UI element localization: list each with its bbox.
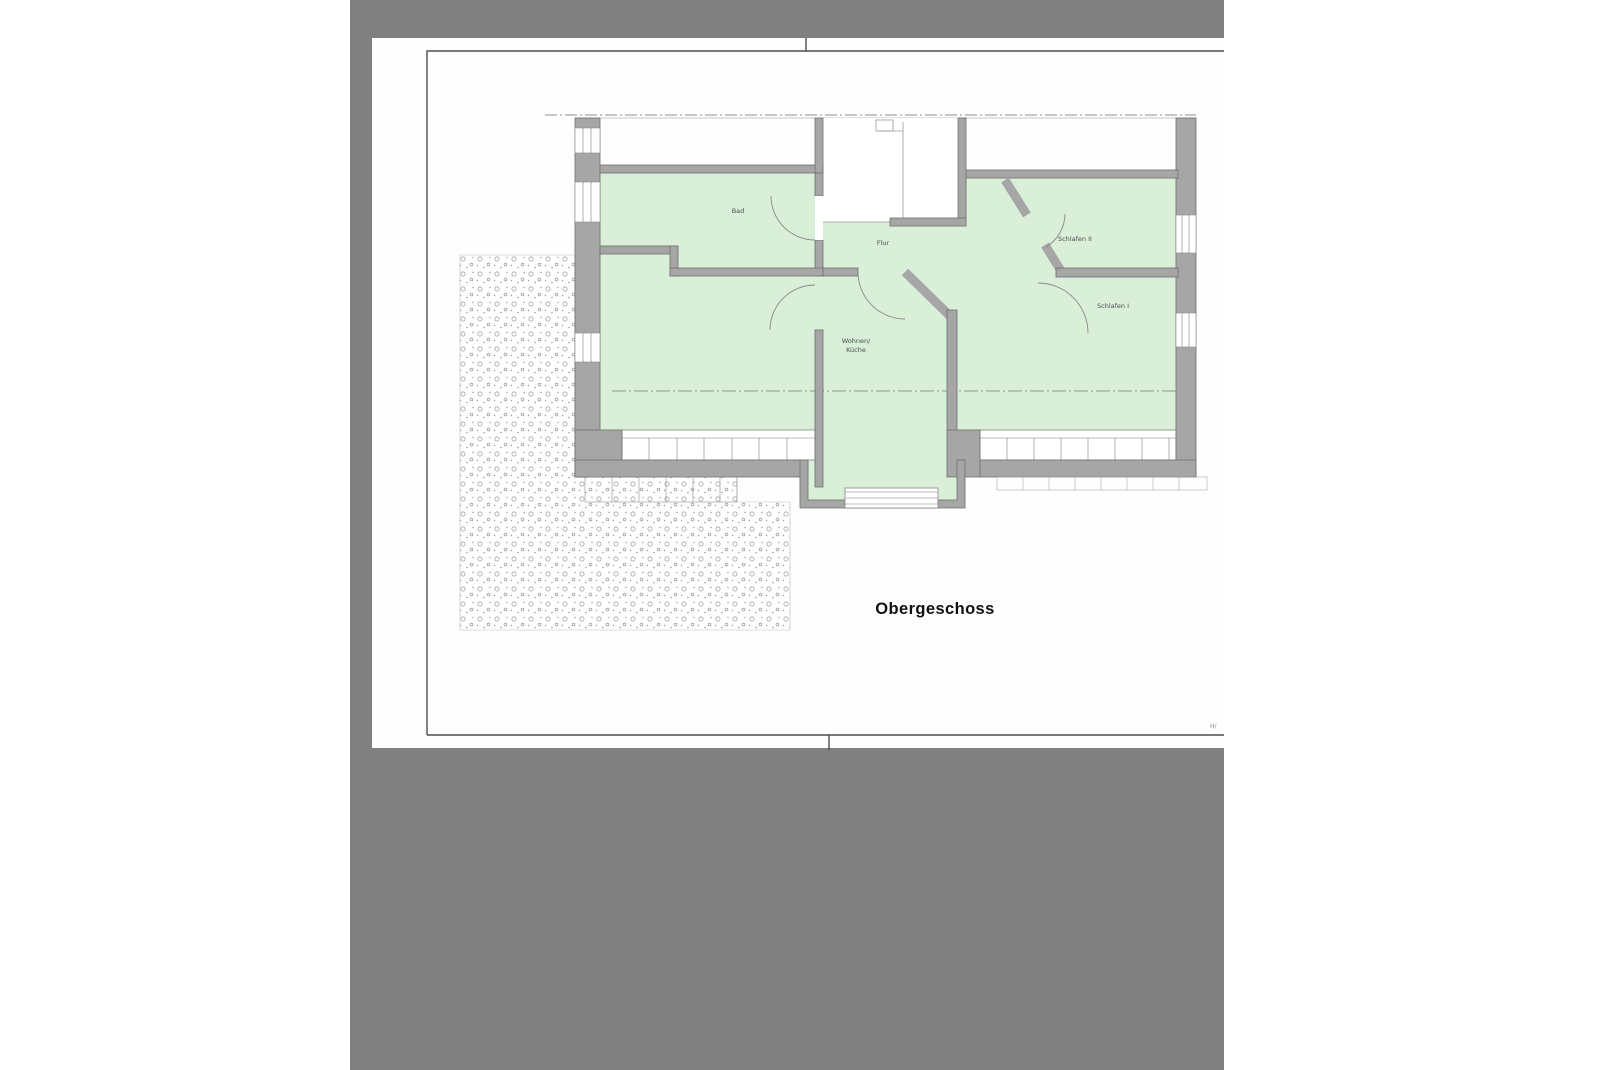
wall-stair-bottom (890, 218, 966, 226)
wall-stair-left (815, 118, 823, 173)
wall-wohnen-schlafen1 (947, 310, 957, 432)
plan-title: Obergeschoss (875, 600, 994, 618)
window-left-3 (575, 333, 600, 362)
wall-stair-right (958, 118, 966, 222)
floorplan-viewer[interactable]: Bad Flur Schlafen II Schlafen I Wohnen/ … (0, 0, 1606, 1070)
wall-bottom-right (980, 460, 1196, 477)
page-corner-mark: H/ (1210, 723, 1218, 730)
room-label-bad: Bad (732, 207, 745, 215)
wall-outer-left (575, 118, 600, 477)
wall-bad-right-upper (815, 173, 823, 196)
wall-bottom-left (575, 460, 808, 477)
room-label-schlafen1: Schlafen I (1097, 302, 1129, 310)
window-left-2 (575, 182, 600, 222)
room-label-schlafen2: Schlafen II (1058, 235, 1092, 243)
wall-bad-bottom-left (600, 246, 678, 254)
wall-top-schlafen2 (962, 170, 1178, 178)
door-gap-bad (815, 196, 823, 240)
window-right-1 (1176, 215, 1196, 253)
window-right-2 (1176, 313, 1196, 347)
wall-bad-bottom-right (670, 268, 823, 276)
wall-top-bad (600, 165, 823, 173)
window-left-1 (575, 128, 600, 153)
wall-flur-wohnen (823, 268, 858, 276)
stairwell (823, 118, 958, 222)
wall-kitchen-partition (815, 330, 823, 487)
room-label-wohnen-line2: Küche (846, 346, 866, 354)
bump-door-band (845, 488, 938, 508)
window-band-left (622, 430, 815, 460)
room-label-wohnen-line1: Wohnen/ (842, 337, 871, 345)
wall-schlafen-divider (1056, 268, 1178, 277)
window-band-right (980, 430, 1176, 460)
wall-outer-right (1176, 118, 1196, 477)
screenshot-root: Bad Flur Schlafen II Schlafen I Wohnen/ … (0, 0, 1606, 1070)
room-label-flur: Flur (877, 239, 890, 247)
